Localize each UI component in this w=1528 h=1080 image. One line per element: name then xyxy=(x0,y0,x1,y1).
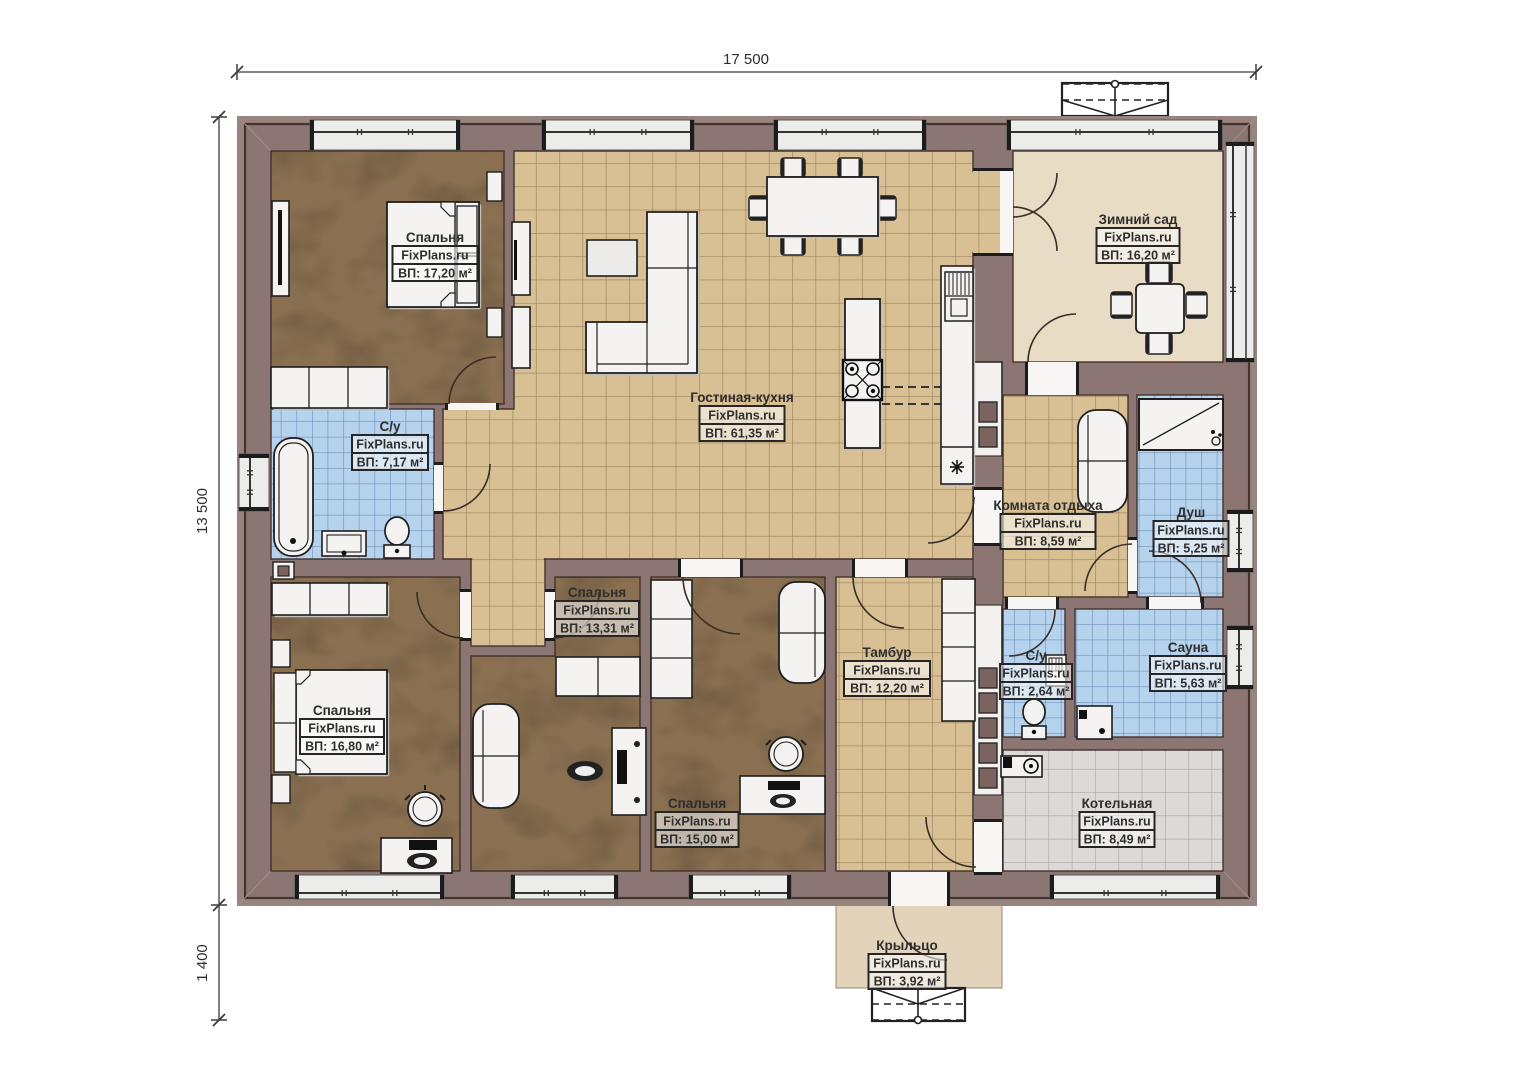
svg-text:1 400: 1 400 xyxy=(194,944,211,982)
svg-text:Спальня: Спальня xyxy=(406,230,464,245)
svg-text:Спальня: Спальня xyxy=(668,796,726,811)
svg-text:Спальня: Спальня xyxy=(313,703,371,718)
svg-text:Душ: Душ xyxy=(1177,505,1206,520)
svg-text:FixPlans.ru: FixPlans.ru xyxy=(1104,231,1171,245)
svg-text:ВП: 5,63 м²: ВП: 5,63 м² xyxy=(1155,677,1222,691)
svg-text:FixPlans.ru: FixPlans.ru xyxy=(1154,659,1221,673)
svg-text:FixPlans.ru: FixPlans.ru xyxy=(308,722,375,736)
svg-text:ВП: 61,35 м²: ВП: 61,35 м² xyxy=(705,427,779,441)
svg-text:ВП: 16,20 м²: ВП: 16,20 м² xyxy=(1101,249,1175,263)
svg-text:Котельная: Котельная xyxy=(1082,796,1153,811)
svg-text:ВП: 3,92 м²: ВП: 3,92 м² xyxy=(874,975,941,989)
svg-text:FixPlans.ru: FixPlans.ru xyxy=(401,249,468,263)
svg-text:ВП: 2,64 м²: ВП: 2,64 м² xyxy=(1003,685,1070,699)
svg-text:ВП: 12,20 м²: ВП: 12,20 м² xyxy=(850,682,924,696)
svg-text:Тамбур: Тамбур xyxy=(863,645,912,660)
svg-text:ВП: 7,17 м²: ВП: 7,17 м² xyxy=(357,456,424,470)
svg-text:Зимний сад: Зимний сад xyxy=(1099,212,1178,227)
svg-text:FixPlans.ru: FixPlans.ru xyxy=(873,957,940,971)
svg-text:FixPlans.ru: FixPlans.ru xyxy=(1002,667,1069,681)
svg-text:Сауна: Сауна xyxy=(1168,640,1209,655)
svg-text:FixPlans.ru: FixPlans.ru xyxy=(708,409,775,423)
svg-text:ВП: 8,49 м²: ВП: 8,49 м² xyxy=(1084,833,1151,847)
svg-text:ВП: 15,00 м²: ВП: 15,00 м² xyxy=(660,833,734,847)
svg-text:FixPlans.ru: FixPlans.ru xyxy=(1157,524,1224,538)
svg-text:FixPlans.ru: FixPlans.ru xyxy=(663,815,730,829)
svg-text:FixPlans.ru: FixPlans.ru xyxy=(1083,815,1150,829)
svg-text:ВП: 8,59 м²: ВП: 8,59 м² xyxy=(1015,535,1082,549)
svg-text:С/у: С/у xyxy=(1025,648,1047,663)
svg-text:С/у: С/у xyxy=(379,419,401,434)
svg-text:FixPlans.ru: FixPlans.ru xyxy=(853,664,920,678)
svg-text:ВП: 16,80 м²: ВП: 16,80 м² xyxy=(305,740,379,754)
svg-text:FixPlans.ru: FixPlans.ru xyxy=(1014,517,1081,531)
svg-text:Спальня: Спальня xyxy=(568,585,626,600)
svg-text:FixPlans.ru: FixPlans.ru xyxy=(356,438,423,452)
svg-text:Комната отдыха: Комната отдыха xyxy=(993,498,1103,513)
svg-text:Крыльцо: Крыльцо xyxy=(876,938,937,953)
svg-text:ВП: 17,20 м²: ВП: 17,20 м² xyxy=(398,267,472,281)
svg-text:Гостиная-кухня: Гостиная-кухня xyxy=(690,390,793,405)
svg-text:FixPlans.ru: FixPlans.ru xyxy=(563,604,630,618)
svg-text:13 500: 13 500 xyxy=(194,488,211,534)
svg-text:ВП: 13,31 м²: ВП: 13,31 м² xyxy=(560,622,634,636)
svg-text:ВП: 5,25 м²: ВП: 5,25 м² xyxy=(1158,542,1225,556)
svg-text:17 500: 17 500 xyxy=(723,51,769,68)
